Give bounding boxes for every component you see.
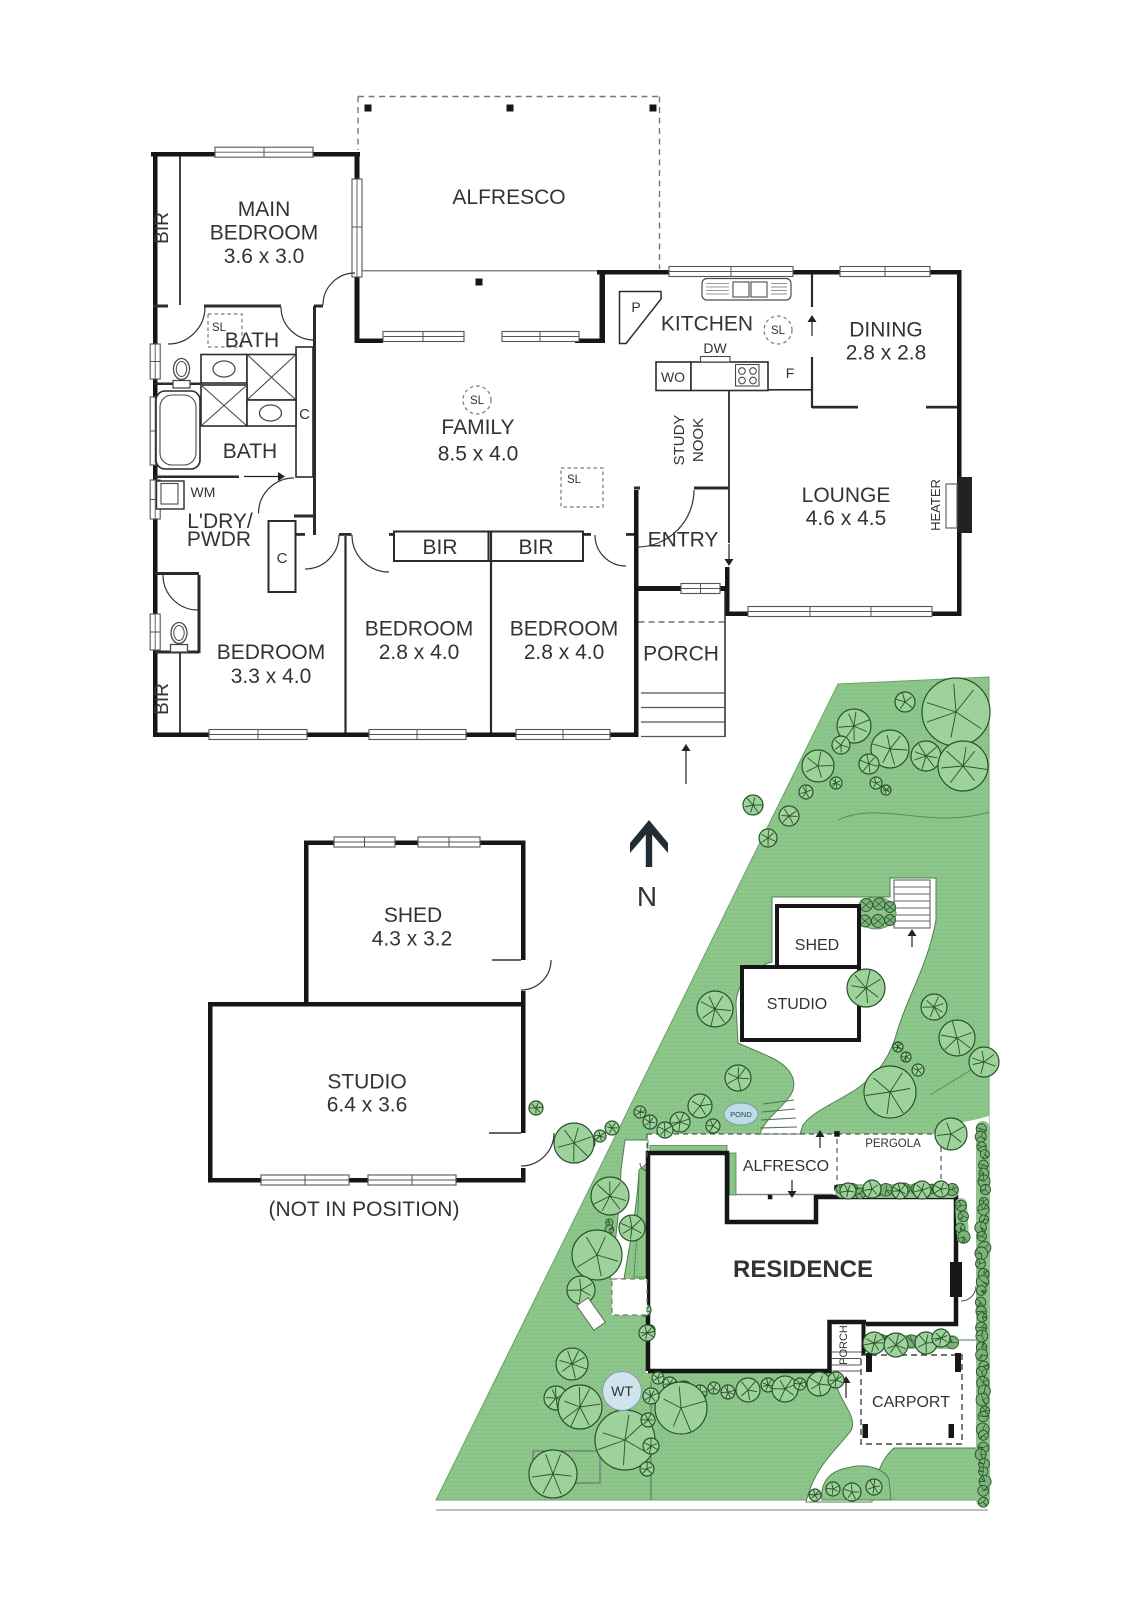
svg-text:6.4 x 3.6: 6.4 x 3.6 <box>327 1094 408 1117</box>
svg-text:DW: DW <box>703 340 727 356</box>
svg-text:PWDR: PWDR <box>187 528 251 551</box>
svg-text:POND: POND <box>730 1110 752 1119</box>
svg-text:SHED: SHED <box>795 937 839 954</box>
svg-text:BEDROOM: BEDROOM <box>510 618 619 641</box>
svg-text:BEDROOM: BEDROOM <box>217 641 326 664</box>
svg-text:BATH: BATH <box>225 329 279 352</box>
svg-text:DINING: DINING <box>849 319 923 342</box>
svg-text:2.8 x 2.8: 2.8 x 2.8 <box>846 342 927 365</box>
svg-text:BEDROOM: BEDROOM <box>210 222 319 245</box>
svg-text:P: P <box>631 299 640 315</box>
svg-text:STUDIO: STUDIO <box>767 996 827 1013</box>
svg-text:FAMILY: FAMILY <box>441 416 514 439</box>
svg-text:SL: SL <box>470 395 485 407</box>
svg-text:ENTRY: ENTRY <box>648 529 719 552</box>
svg-text:NOOK: NOOK <box>690 418 707 462</box>
svg-text:RESIDENCE: RESIDENCE <box>733 1256 873 1283</box>
svg-text:SHED: SHED <box>384 904 442 927</box>
svg-text:F: F <box>786 365 795 381</box>
svg-text:PORCH: PORCH <box>838 1325 850 1365</box>
svg-text:4.3 x 3.2: 4.3 x 3.2 <box>372 928 453 951</box>
svg-text:MAIN: MAIN <box>238 198 291 221</box>
svg-text:3.3 x 4.0: 3.3 x 4.0 <box>231 665 312 688</box>
svg-text:BATH: BATH <box>223 440 277 463</box>
svg-text:SL: SL <box>771 325 786 337</box>
svg-text:8.5 x 4.0: 8.5 x 4.0 <box>438 443 519 466</box>
svg-text:BIR: BIR <box>152 212 173 244</box>
svg-text:LOUNGE: LOUNGE <box>802 484 891 507</box>
svg-text:WO: WO <box>661 369 685 385</box>
svg-text:3.6 x 3.0: 3.6 x 3.0 <box>224 245 305 268</box>
svg-text:2.8 x 4.0: 2.8 x 4.0 <box>379 641 460 664</box>
svg-text:ALFRESCO: ALFRESCO <box>743 1158 829 1175</box>
svg-text:KITCHEN: KITCHEN <box>661 313 753 336</box>
svg-text:WM: WM <box>191 484 216 500</box>
svg-text:BIR: BIR <box>518 536 553 559</box>
svg-text:PORCH: PORCH <box>643 643 719 666</box>
svg-text:CARPORT: CARPORT <box>872 1394 950 1411</box>
svg-text:BIR: BIR <box>152 683 173 715</box>
svg-text:STUDY: STUDY <box>671 415 688 466</box>
svg-text:WT: WT <box>611 1383 633 1399</box>
svg-text:STUDIO: STUDIO <box>327 1071 406 1094</box>
svg-text:BEDROOM: BEDROOM <box>365 618 474 641</box>
svg-text:HEATER: HEATER <box>928 479 943 531</box>
svg-text:(NOT IN POSITION): (NOT IN POSITION) <box>269 1198 460 1221</box>
svg-text:2.8 x 4.0: 2.8 x 4.0 <box>524 641 605 664</box>
svg-text:PERGOLA: PERGOLA <box>865 1138 921 1150</box>
svg-text:ALFRESCO: ALFRESCO <box>452 186 565 209</box>
svg-text:C: C <box>277 550 288 567</box>
svg-text:C: C <box>299 406 310 423</box>
svg-text:4.6 x 4.5: 4.6 x 4.5 <box>806 507 887 530</box>
svg-text:SL: SL <box>567 474 582 486</box>
svg-text:N: N <box>637 881 657 912</box>
svg-text:BIR: BIR <box>422 536 457 559</box>
